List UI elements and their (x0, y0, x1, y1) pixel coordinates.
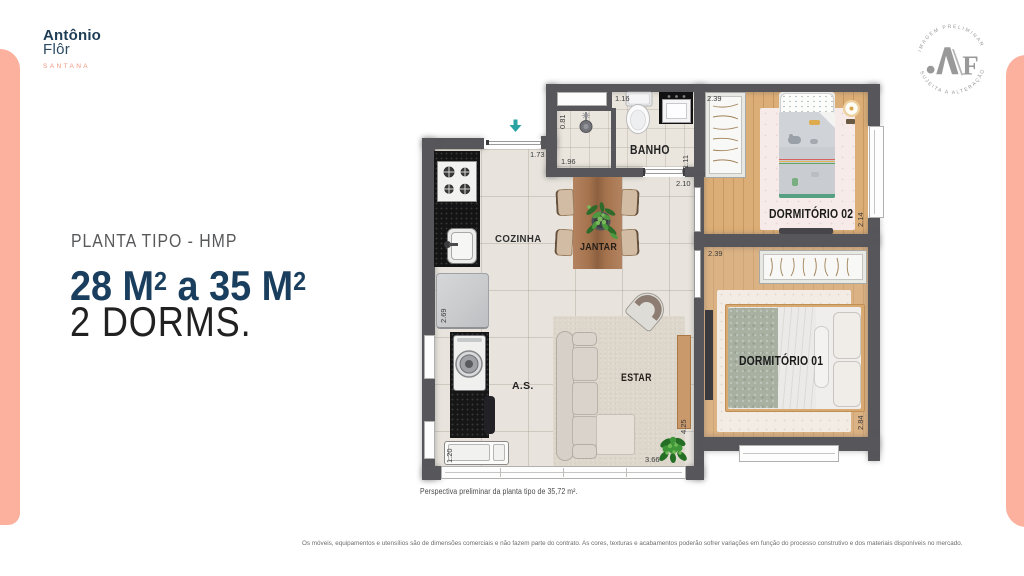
svg-text:F: F (962, 50, 978, 80)
svg-text:IMAGEM PRELIMINAR: IMAGEM PRELIMINAR (917, 24, 985, 53)
